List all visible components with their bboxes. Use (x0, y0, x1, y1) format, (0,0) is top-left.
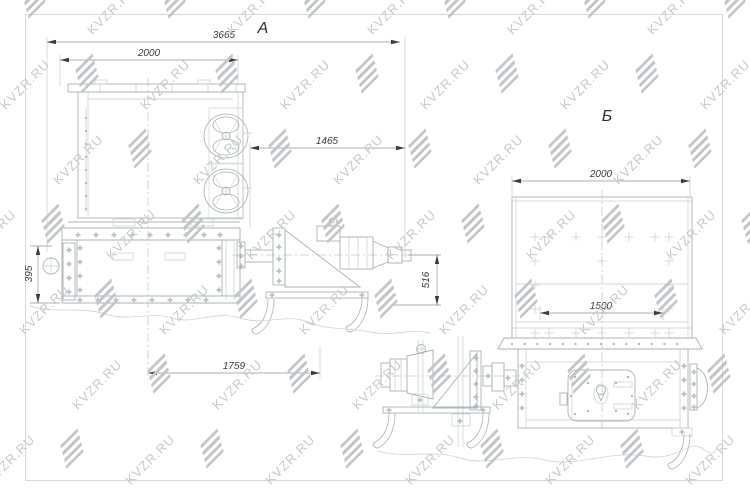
view-b (373, 190, 718, 469)
view-a-drive (237, 218, 411, 298)
support-hook (346, 297, 368, 332)
ground-break-line (378, 446, 718, 462)
view-a-frame (43, 228, 240, 303)
view-b-drive (381, 345, 516, 414)
view-b-label: Б (602, 108, 612, 125)
support-hook (373, 413, 395, 448)
dimensions: 3665 2000 1465 1759 395 516 2000 1500 (24, 30, 690, 378)
fan-icon (204, 108, 248, 164)
end-cap (672, 364, 708, 436)
dim-drive-length-a: 1465 (316, 136, 339, 147)
dim-body-width-b: 2000 (589, 169, 613, 180)
dim-opening-width-b: 1500 (590, 301, 613, 312)
drawing-sheet: 3665 2000 1465 1759 395 516 2000 1500 А … (0, 0, 750, 500)
view-a (30, 78, 430, 380)
support-hook (252, 299, 274, 334)
motor (340, 237, 373, 269)
dim-body-width-a: 2000 (137, 48, 161, 59)
ground-break-line (30, 306, 430, 334)
dim-drive-height-a: 516 (421, 271, 432, 288)
view-a-label: А (257, 20, 269, 37)
engineering-drawing: 3665 2000 1465 1759 395 516 2000 1500 А … (0, 0, 750, 500)
dim-base-length-a: 1759 (223, 361, 246, 372)
dim-frame-height-a: 395 (24, 265, 35, 282)
fan-icon (204, 163, 248, 219)
view-a-body (78, 92, 243, 218)
dim-overall-width-a: 3665 (213, 30, 236, 41)
